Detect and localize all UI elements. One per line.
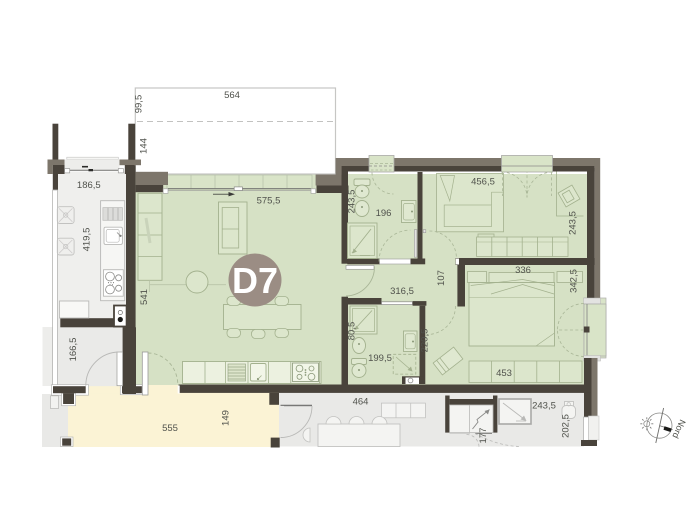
svg-text:220,5: 220,5 [420, 329, 431, 353]
svg-text:202,5: 202,5 [561, 414, 572, 438]
svg-text:166,5: 166,5 [68, 338, 79, 362]
svg-text:336: 336 [515, 265, 531, 276]
svg-text:99,5: 99,5 [134, 95, 145, 114]
svg-text:196: 196 [376, 208, 392, 219]
svg-text:243,5: 243,5 [532, 401, 556, 412]
svg-text:419,5: 419,5 [82, 228, 93, 252]
svg-text:243,5: 243,5 [347, 190, 358, 214]
svg-text:177: 177 [478, 428, 489, 444]
svg-text:555: 555 [162, 423, 178, 434]
svg-text:564: 564 [224, 90, 240, 101]
svg-text:186,5: 186,5 [77, 180, 101, 191]
svg-text:456,5: 456,5 [471, 177, 495, 188]
svg-text:149: 149 [221, 410, 232, 426]
svg-text:107: 107 [436, 270, 447, 286]
svg-text:464: 464 [353, 397, 369, 408]
svg-text:243,5: 243,5 [568, 211, 579, 235]
svg-text:D7: D7 [232, 260, 278, 301]
svg-text:342,5: 342,5 [569, 269, 580, 293]
svg-text:541: 541 [139, 289, 150, 305]
svg-text:453: 453 [496, 368, 512, 379]
svg-text:316,5: 316,5 [390, 286, 414, 297]
svg-text:199,5: 199,5 [368, 353, 392, 364]
svg-text:575,5: 575,5 [257, 196, 281, 207]
svg-text:144: 144 [139, 138, 150, 154]
svg-text:80,5: 80,5 [347, 322, 358, 341]
